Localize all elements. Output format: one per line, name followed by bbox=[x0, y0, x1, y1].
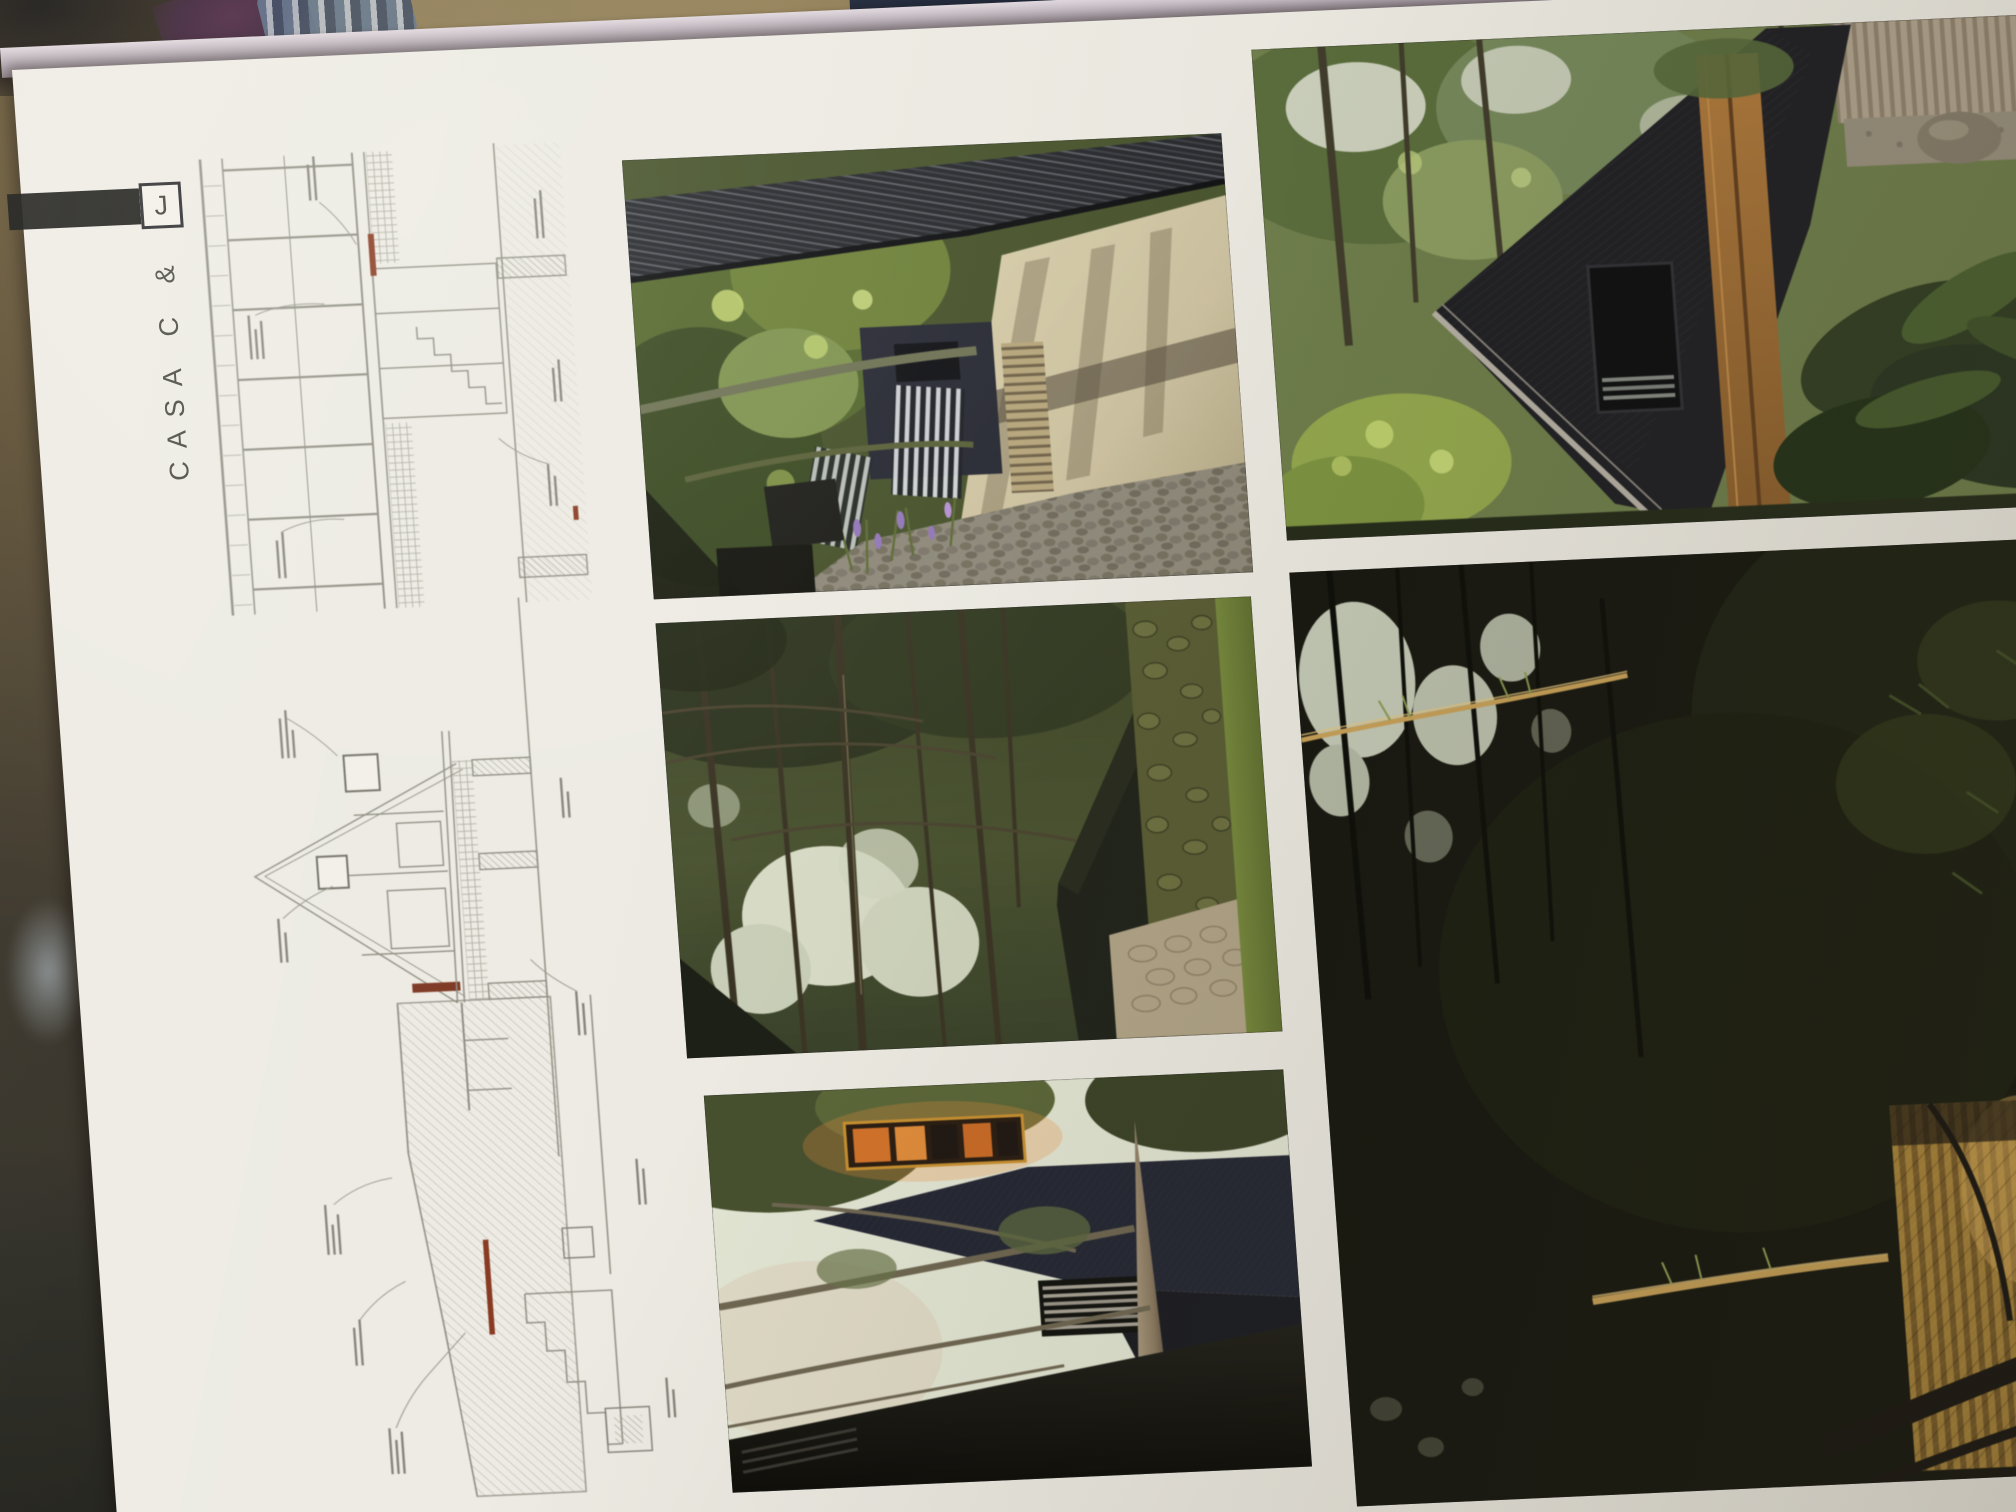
section-left-terrain bbox=[397, 993, 655, 1498]
section-right-longhouse bbox=[200, 140, 593, 615]
planter-cube bbox=[764, 479, 844, 549]
chapter-tab-letter: J bbox=[153, 190, 169, 222]
photo-stone-wall-walkway bbox=[622, 133, 1253, 599]
photo-night-lit-wall bbox=[1289, 535, 2016, 1506]
photo-gabled-cabin bbox=[1251, 12, 2016, 540]
chapter-tab-letter-box: J bbox=[138, 181, 183, 229]
cabin-window bbox=[1588, 263, 1682, 412]
photo-dusk-cabin-window bbox=[704, 1069, 1312, 1492]
book-page: J CASA C & bbox=[12, 0, 2016, 1512]
photo-of-book-page: J CASA C & bbox=[0, 0, 2016, 1512]
photo-forest-cabin bbox=[656, 596, 1283, 1058]
chapter-tab-bar bbox=[7, 188, 141, 230]
red-accent-4 bbox=[573, 506, 579, 520]
red-accent-2 bbox=[412, 982, 461, 993]
